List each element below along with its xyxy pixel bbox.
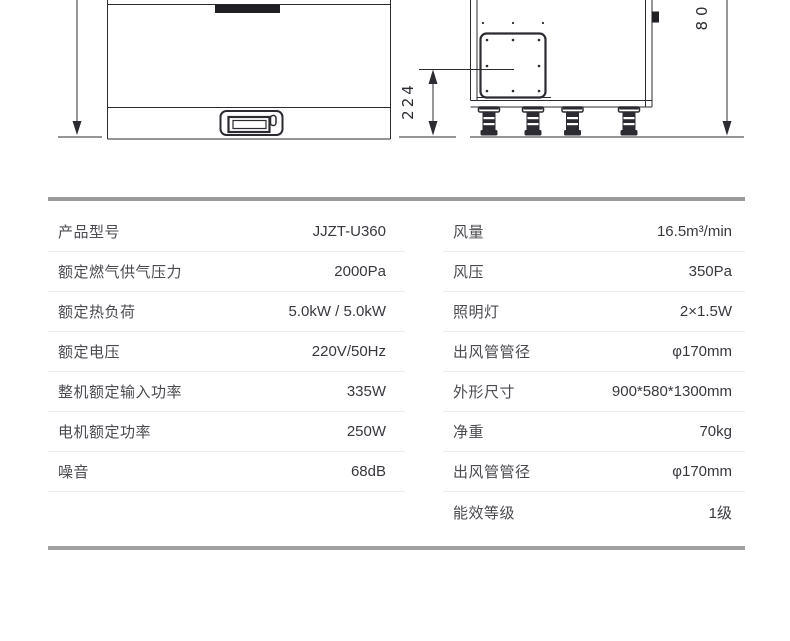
spec-value: 2×1.5W	[680, 303, 732, 320]
technical-drawing: 224	[0, 0, 790, 165]
spec-row: 照明灯 2×1.5W	[443, 292, 745, 332]
spec-value: 250W	[347, 423, 386, 440]
spec-value: 900*580*1300mm	[612, 383, 732, 400]
product-spec-page: 224	[0, 0, 790, 641]
spec-row: 电机额定功率 250W	[48, 412, 405, 452]
front-view-drawing	[58, 0, 391, 139]
dimension-224: 224	[399, 70, 514, 138]
spec-label: 产品型号	[58, 221, 120, 242]
spec-row: 额定热负荷 5.0kW / 5.0kW	[48, 292, 405, 332]
spec-label: 风压	[453, 261, 484, 282]
spec-row: 风量 16.5m³/min	[443, 212, 745, 252]
spec-value: JJZT-U360	[313, 223, 386, 240]
leveling-foot	[479, 107, 500, 136]
leveling-feet	[479, 107, 640, 136]
spec-row: 能效等级 1级	[443, 492, 745, 532]
spec-value: 1级	[709, 502, 732, 523]
leveling-foot	[562, 107, 583, 136]
spec-column-left: 产品型号 JJZT-U360 额定燃气供气压力 2000Pa 额定热负荷 5.0…	[48, 201, 405, 546]
spec-label: 整机额定输入功率	[58, 381, 182, 402]
spec-value: 70kg	[699, 423, 732, 440]
spec-label: 风量	[453, 221, 484, 242]
drawer-handle	[221, 111, 283, 135]
spec-label: 出风管管径	[453, 461, 531, 482]
dimension-80-label: 80	[693, 1, 711, 30]
spec-row: 整机额定输入功率 335W	[48, 372, 405, 412]
spec-label: 能效等级	[453, 502, 515, 523]
spec-label: 噪音	[58, 461, 89, 482]
leveling-foot	[619, 107, 640, 136]
spec-value: φ170mm	[672, 463, 732, 480]
spec-label: 额定热负荷	[58, 301, 136, 322]
spec-row: 净重 70kg	[443, 412, 745, 452]
dimension-80: 80	[693, 0, 732, 136]
spec-value: 335W	[347, 383, 386, 400]
technical-drawing-svg: 224	[0, 0, 790, 165]
access-panel	[481, 22, 546, 98]
spec-value: 350Pa	[689, 263, 732, 280]
front-height-dimension-arrow	[58, 0, 102, 137]
spec-value: 2000Pa	[334, 263, 386, 280]
front-cabinet-outline	[108, 0, 391, 139]
side-view-drawing: 224	[399, 0, 744, 137]
spec-row: 风压 350Pa	[443, 252, 745, 292]
spec-value: 5.0kW / 5.0kW	[288, 303, 386, 320]
spec-value: 16.5m³/min	[657, 223, 732, 240]
side-bracket	[652, 12, 660, 23]
spec-row: 出风管管径 φ170mm	[443, 332, 745, 372]
spec-value: φ170mm	[672, 343, 732, 360]
spec-label: 出风管管径	[453, 341, 531, 362]
spec-label: 额定电压	[58, 341, 120, 362]
spec-row: 额定燃气供气压力 2000Pa	[48, 252, 405, 292]
spec-row: 外形尺寸 900*580*1300mm	[443, 372, 745, 412]
spec-label: 电机额定功率	[58, 421, 151, 442]
spec-value: 68dB	[351, 463, 386, 480]
spec-label: 净重	[453, 421, 484, 442]
spec-label: 照明灯	[453, 301, 500, 322]
side-cabinet-outline	[471, 0, 653, 107]
spec-value: 220V/50Hz	[312, 343, 386, 360]
spec-row: 噪音 68dB	[48, 452, 405, 492]
dimension-224-label: 224	[399, 82, 417, 120]
spec-row: 额定电压 220V/50Hz	[48, 332, 405, 372]
spec-column-right: 风量 16.5m³/min 风压 350Pa 照明灯 2×1.5W 出风管管径 …	[443, 201, 745, 546]
spec-row: 出风管管径 φ170mm	[443, 452, 745, 492]
spec-label: 额定燃气供气压力	[58, 261, 182, 282]
spec-row: 产品型号 JJZT-U360	[48, 212, 405, 252]
spec-table: 产品型号 JJZT-U360 额定燃气供气压力 2000Pa 额定热负荷 5.0…	[48, 197, 745, 550]
spec-label: 外形尺寸	[453, 381, 515, 402]
leveling-foot	[523, 107, 544, 136]
front-vent-slot	[215, 5, 280, 14]
